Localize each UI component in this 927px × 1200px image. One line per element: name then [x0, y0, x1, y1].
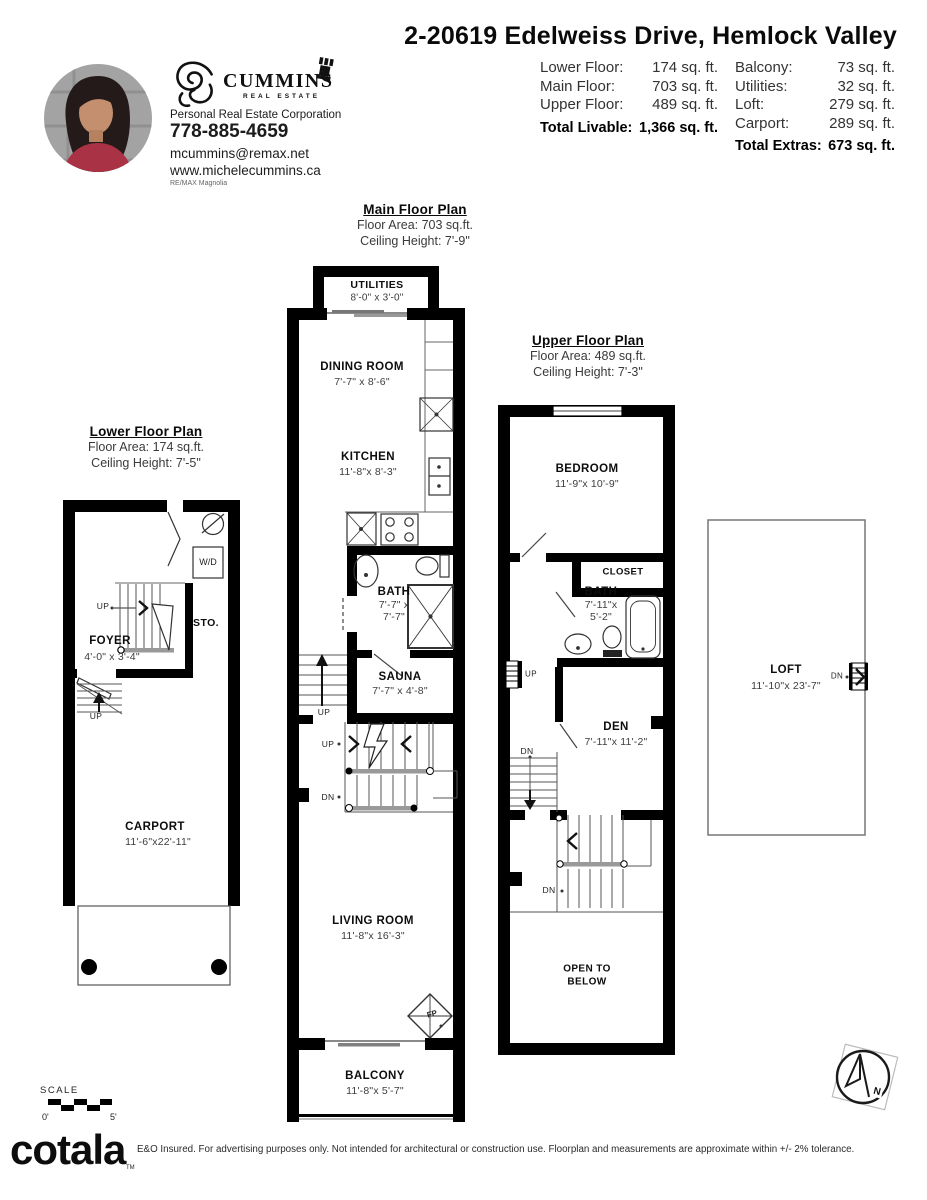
room-label-bath-main: BATH: [378, 586, 411, 598]
stair-marker-dn: DN: [321, 792, 334, 802]
cotala-trademark: TM: [126, 1165, 135, 1171]
room-dims-living: 11'-8"x 16'-3": [341, 930, 405, 942]
floorplan-drawing: [0, 0, 927, 1200]
room-dims-bath-main: 7'-7" x: [379, 599, 409, 611]
hot-water-tank-icon: [202, 514, 224, 535]
room-dims-kitchen: 11'-8"x 8'-3": [339, 466, 397, 478]
room-dims-carport: 11'-6"x22'-11": [125, 836, 191, 848]
room-dims-balcony: 11'-8"x 5'-7": [346, 1085, 404, 1097]
upper-sink-icon: [565, 634, 591, 654]
room-label-den: DEN: [603, 721, 628, 733]
disclaimer-text: E&O Insured. For advertising purposes on…: [137, 1144, 912, 1155]
ladder-marker-dn: DN: [831, 672, 843, 681]
upper-stairs: [510, 752, 663, 912]
room-label-bath-upper: BATH: [585, 586, 618, 598]
stair-marker-dn: DN: [520, 746, 533, 756]
room-label-living: LIVING ROOM: [332, 915, 414, 927]
room-dims-loft: 11'-10"x 23'-7": [751, 680, 821, 692]
shower-icon: [408, 585, 453, 648]
bathtub-icon: [626, 596, 660, 658]
room-dims-dining: 7'-7" x 8'-6": [334, 376, 390, 388]
scale-end: 5': [110, 1112, 117, 1122]
lower-floor-details: [77, 512, 230, 985]
room-label-bedroom: BEDROOM: [556, 463, 619, 475]
room-dims-foyer: 4'-0" x 3'-4": [84, 651, 140, 663]
scale-label: SCALE: [40, 1085, 79, 1096]
room-dims-bath-upper: 7'-11"x: [585, 599, 618, 611]
room-label-foyer: FOYER: [89, 635, 131, 647]
stove-icon: [381, 514, 418, 545]
stair-marker-up: UP: [318, 707, 331, 717]
room-label-balcony: BALCONY: [345, 1070, 405, 1082]
open-to-below-label-1: OPEN TO: [563, 964, 611, 975]
upper-floor-doors: [522, 533, 577, 748]
bath-sink-icon: [354, 555, 378, 587]
floorplan-page: 2-20619 Edelweiss Drive, Hemlock Valley: [0, 0, 927, 1200]
compass-icon: [832, 1044, 897, 1109]
stair-marker-up: UP: [90, 711, 103, 721]
kitchen-counter-and-appliances: [345, 320, 453, 545]
room-label-dining: DINING ROOM: [320, 361, 404, 373]
upper-floor-walls: [498, 405, 675, 1055]
scale-bar: [48, 1099, 112, 1111]
washer-dryer-label: W/D: [199, 557, 217, 567]
loft-ladder-up-icon: [502, 661, 522, 688]
carport-post: [211, 959, 227, 975]
bedroom-window: [553, 406, 622, 416]
upper-toilet-icon: [603, 626, 622, 657]
stair-marker-up: UP: [97, 601, 110, 611]
fridge-icon: [429, 458, 450, 495]
room-label-carport: CARPORT: [125, 821, 185, 833]
stair-marker-up: UP: [322, 739, 335, 749]
room-label-storage: STO.: [193, 617, 219, 629]
room-label-sauna: SAUNA: [379, 671, 422, 683]
toilet-icon: [416, 555, 449, 577]
room-dims-utilities: 8'-0" x 3'-0": [351, 293, 404, 304]
room-dims-bedroom: 11'-9"x 10'-9": [555, 478, 619, 490]
room-dims-sauna: 7'-7" x 4'-8": [372, 685, 428, 697]
room-dims-den: 7'-11"x 11'-2": [585, 736, 648, 748]
room-label-utilities: UTILITIES: [350, 279, 403, 291]
room-dims-bath-main-2: 7'-7": [383, 611, 405, 623]
room-label-loft: LOFT: [770, 664, 802, 676]
scale-start: 0': [42, 1112, 49, 1122]
loft-outline: [708, 520, 868, 835]
cotala-logo: cotala: [10, 1126, 125, 1174]
room-dims-bath-upper-2: 5'-2": [590, 611, 612, 623]
ladder-marker-up: UP: [525, 670, 537, 679]
open-to-below-label-2: BELOW: [567, 977, 606, 988]
room-label-kitchen: KITCHEN: [341, 451, 395, 463]
room-label-closet: CLOSET: [603, 567, 644, 578]
carport-post: [81, 959, 97, 975]
prep-sink-icon: [347, 513, 376, 545]
stair-marker-dn: DN: [542, 885, 555, 895]
